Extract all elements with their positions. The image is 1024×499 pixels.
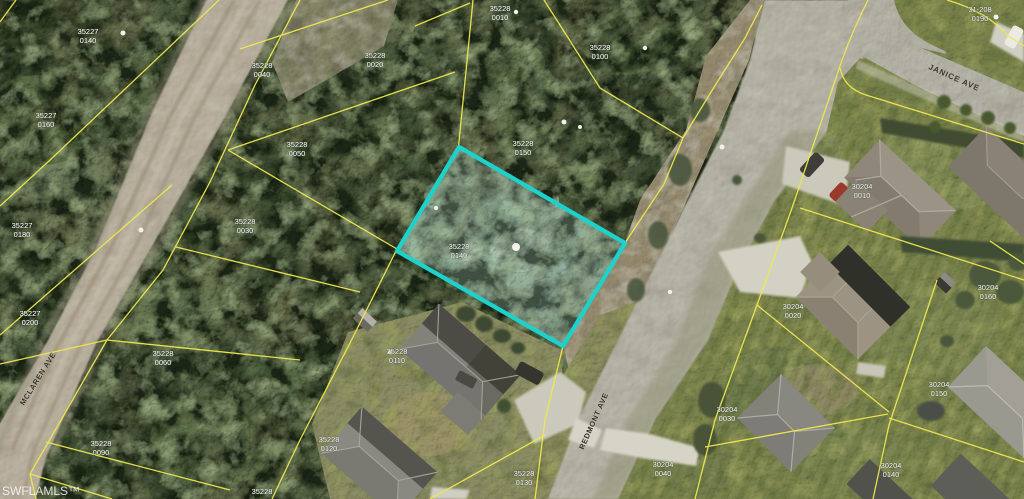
svg-text:35228: 35228	[287, 140, 308, 149]
svg-text:0120: 0120	[321, 444, 338, 453]
svg-text:0160: 0160	[980, 292, 997, 301]
svg-text:0160: 0160	[38, 120, 55, 129]
svg-text:0060: 0060	[155, 358, 172, 367]
svg-text:31-208: 31-208	[968, 5, 991, 14]
svg-text:0090: 0090	[93, 448, 110, 457]
svg-text:30204: 30204	[783, 302, 804, 311]
svg-text:0110: 0110	[389, 356, 405, 365]
svg-text:0100: 0100	[592, 52, 609, 61]
svg-text:0130: 0130	[516, 478, 533, 487]
svg-text:30204: 30204	[717, 405, 738, 414]
svg-text:35227: 35227	[12, 221, 33, 230]
svg-text:30204: 30204	[978, 283, 999, 292]
svg-text:35228: 35228	[153, 349, 174, 358]
svg-text:0180: 0180	[14, 230, 31, 239]
svg-text:35228: 35228	[319, 435, 340, 444]
svg-text:35228: 35228	[387, 347, 408, 356]
svg-text:0020: 0020	[367, 60, 384, 69]
svg-text:0010: 0010	[854, 191, 871, 200]
svg-text:35228: 35228	[365, 51, 386, 60]
svg-text:35228: 35228	[252, 61, 273, 70]
svg-text:30204: 30204	[929, 380, 950, 389]
svg-text:35228: 35228	[235, 217, 256, 226]
svg-text:0150: 0150	[515, 148, 532, 157]
svg-text:0030: 0030	[719, 414, 736, 423]
svg-text:0200: 0200	[22, 318, 39, 327]
svg-text:0140: 0140	[883, 470, 900, 479]
svg-text:35228: 35228	[514, 469, 535, 478]
svg-text:0140: 0140	[80, 36, 97, 45]
svg-text:35228: 35228	[91, 439, 112, 448]
svg-text:35227: 35227	[20, 309, 41, 318]
svg-text:35228: 35228	[590, 43, 611, 52]
svg-text:0030: 0030	[237, 226, 254, 235]
svg-text:SWFLAMLS™: SWFLAMLS™	[2, 484, 80, 498]
svg-text:35228: 35228	[513, 139, 534, 148]
svg-text:0140: 0140	[451, 251, 468, 260]
svg-text:0050: 0050	[289, 149, 306, 158]
svg-text:0010: 0010	[492, 13, 509, 22]
svg-text:30204: 30204	[881, 461, 902, 470]
svg-text:0020: 0020	[785, 311, 802, 320]
svg-text:35228: 35228	[252, 487, 273, 496]
svg-text:0040: 0040	[655, 469, 672, 478]
svg-text:30204: 30204	[653, 460, 674, 469]
svg-text:0190: 0190	[972, 14, 989, 23]
svg-text:0040: 0040	[254, 70, 271, 79]
svg-text:0150: 0150	[931, 389, 948, 398]
svg-text:35228: 35228	[449, 242, 470, 251]
svg-text:35228: 35228	[490, 4, 511, 13]
svg-text:35227: 35227	[78, 27, 99, 36]
svg-text:30204: 30204	[852, 182, 873, 191]
svg-text:35227: 35227	[36, 111, 57, 120]
